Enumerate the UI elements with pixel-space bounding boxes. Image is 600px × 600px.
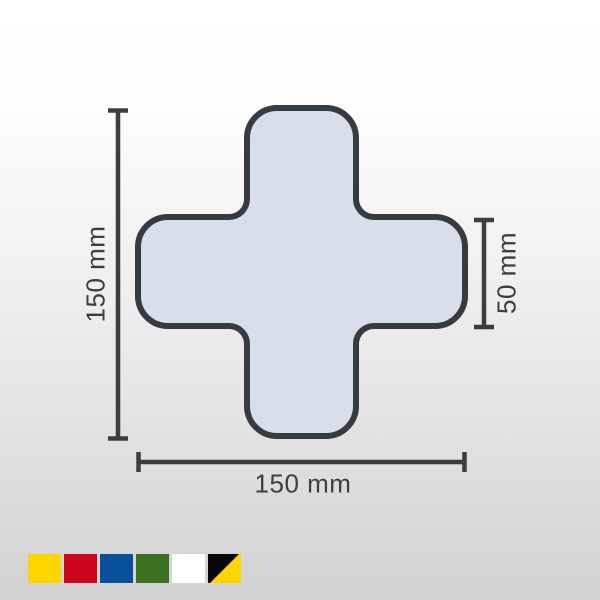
product-dimension-diagram: 150 mm 150 mm 50 mm — [0, 0, 600, 600]
swatch-yellow — [28, 554, 61, 583]
swatch-black-yellow — [208, 554, 241, 583]
swatch-red — [64, 554, 97, 583]
dimension-label-width: 150 mm — [255, 469, 352, 500]
dimension-label-height: 150 mm — [81, 226, 112, 323]
swatch-green — [136, 554, 169, 583]
dimension-label-arm-width: 50 mm — [492, 232, 523, 314]
swatch-white — [172, 554, 205, 583]
cross-shape — [138, 108, 465, 436]
swatch-blue — [100, 554, 133, 583]
color-options — [28, 554, 241, 583]
